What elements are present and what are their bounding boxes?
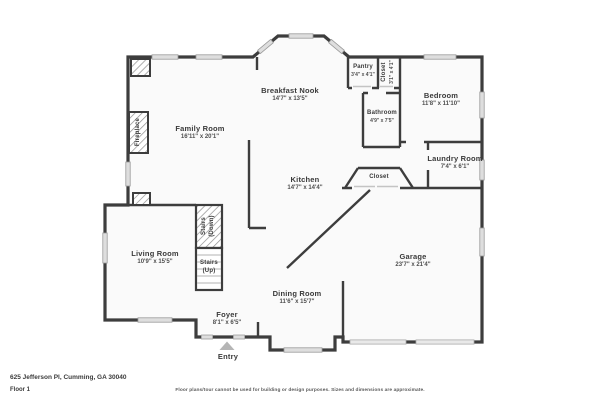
- chimney-box-top-left: [131, 59, 150, 76]
- bay-window: [289, 34, 313, 38]
- entry-door-right: [234, 335, 245, 339]
- chimney-box-living: [133, 193, 150, 205]
- window: [480, 228, 484, 256]
- footer-address: 625 Jefferson Pl, Cumming, GA 30040: [10, 374, 126, 381]
- entry-arrow-icon: [220, 342, 235, 351]
- exterior-walls: [105, 36, 482, 350]
- entry-door-left: [202, 335, 213, 339]
- window: [480, 92, 484, 118]
- floorplan-drawing: [0, 0, 600, 400]
- garage-door-right: [416, 340, 474, 344]
- fireplace-box: [129, 112, 148, 153]
- window: [152, 55, 178, 59]
- footer-disclaimer: Floor plans/tour cannot be used for buil…: [0, 388, 600, 393]
- window: [424, 55, 456, 59]
- stairs-down-box: [196, 205, 222, 248]
- window: [196, 55, 222, 59]
- window: [138, 318, 172, 322]
- window: [103, 233, 107, 263]
- floorplan-page: { "colors": { "wall": "#3d3d3d", "room_f…: [0, 0, 600, 400]
- garage-door-left: [350, 340, 406, 344]
- window: [126, 162, 130, 186]
- window: [284, 348, 322, 352]
- window: [480, 160, 484, 180]
